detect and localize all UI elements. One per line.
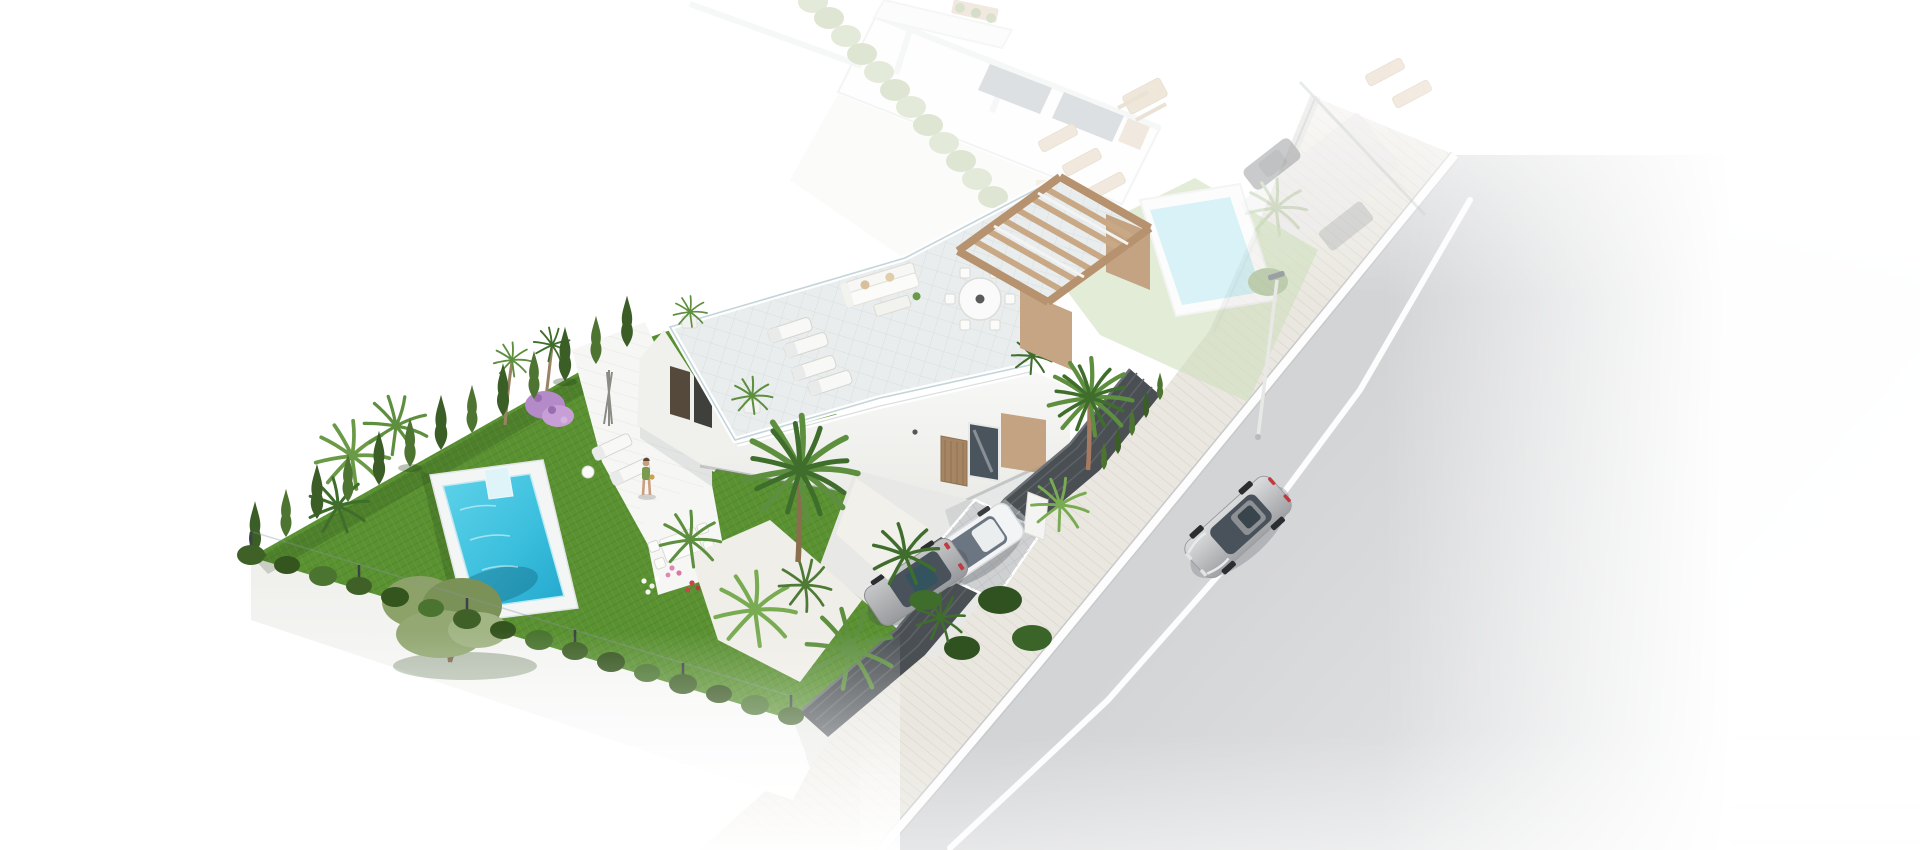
cypress-tree	[311, 464, 324, 519]
cypress-tree	[559, 327, 571, 381]
bush-4	[909, 590, 941, 610]
cypress-tree	[529, 351, 540, 399]
cypress-tree	[404, 417, 415, 467]
bush-1	[978, 586, 1022, 614]
cypress-tree	[621, 295, 633, 347]
facade-accent-panel	[1001, 413, 1046, 474]
villa-aerial-render: Aerial 3D architectural render of a mode…	[0, 0, 1920, 850]
neighbor-roof-plant-2	[971, 8, 981, 18]
cypress-tree	[435, 395, 448, 450]
neighbor-roof-plant-1	[955, 3, 965, 13]
bush-2	[1012, 625, 1052, 651]
wall-lamp	[912, 429, 917, 434]
fern-palm-2	[358, 389, 435, 462]
bush-3	[944, 636, 980, 660]
patio-side-table	[582, 466, 594, 478]
render-canvas: Aerial 3D architectural render of a mode…	[0, 0, 1920, 850]
fade-bottom-left	[0, 600, 900, 850]
fade-right	[1380, 0, 1920, 850]
side-panel-wood	[670, 366, 690, 420]
cypress-tree	[467, 385, 478, 433]
cypress-tree	[497, 363, 509, 416]
cypress-tree	[281, 489, 292, 537]
pool-step-ledge	[484, 467, 513, 499]
cypress-tree	[591, 316, 602, 364]
lamp-base	[1255, 434, 1261, 440]
thin-palm-head-1	[494, 342, 531, 376]
neighbor-roof-plant-3	[986, 13, 996, 23]
